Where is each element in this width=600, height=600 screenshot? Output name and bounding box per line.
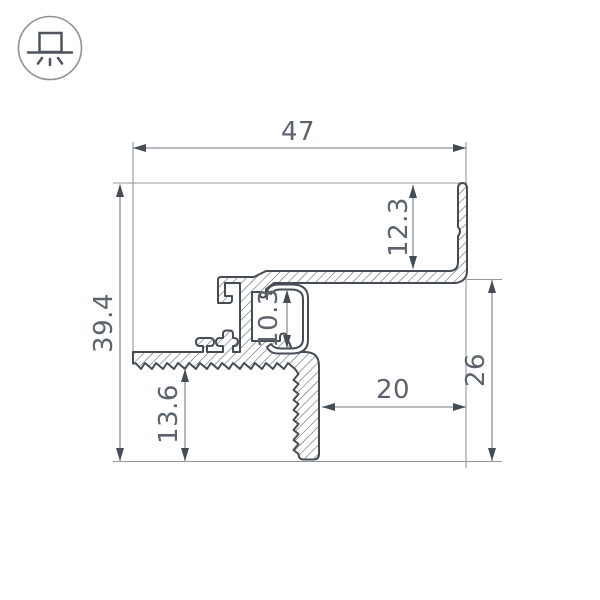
dimension-20: 20 <box>322 375 466 411</box>
dimension-13-6: 13.6 <box>154 369 189 461</box>
icon-light-ray-left <box>38 58 42 64</box>
icon-light-ray-right <box>58 58 62 64</box>
technical-drawing-canvas: 47 39.4 12.3 10.3 13.6 20 26 <box>0 0 600 600</box>
arrow-down-icon <box>181 448 189 461</box>
arrow-up-icon <box>488 280 496 293</box>
arrow-left-icon <box>322 403 335 411</box>
icon-lamp-box <box>40 33 62 52</box>
dim-label-leg-inset: 20 <box>376 375 410 405</box>
dim-label-right-drop: 26 <box>461 353 491 387</box>
arrow-up-icon <box>409 185 417 198</box>
profile-drawing: 47 39.4 12.3 10.3 13.6 20 26 <box>0 0 600 600</box>
arrow-right-icon <box>453 144 466 152</box>
dim-label-channel-opening: 10.3 <box>254 288 284 348</box>
dim-label-total-height: 39.4 <box>89 293 119 353</box>
arrow-left-icon <box>133 144 146 152</box>
arrow-down-icon <box>409 256 417 269</box>
dim-label-back-wall-height: 12.3 <box>384 197 414 257</box>
arrow-down-icon <box>116 448 124 461</box>
arrow-up-icon <box>181 369 189 382</box>
arrow-right-icon <box>453 403 466 411</box>
dimension-47: 47 <box>133 117 466 152</box>
arrow-down-icon <box>488 448 496 461</box>
dimension-39-4: 39.4 <box>89 184 124 461</box>
dim-label-flange-to-base: 13.6 <box>154 384 184 444</box>
dim-label-total-width: 47 <box>281 117 315 147</box>
arrow-up-icon <box>116 184 124 197</box>
arrow-up-icon <box>283 290 291 303</box>
dimension-12-3: 12.3 <box>384 185 417 269</box>
recessed-light-icon <box>19 17 82 80</box>
dimension-10-3: 10.3 <box>254 288 291 348</box>
